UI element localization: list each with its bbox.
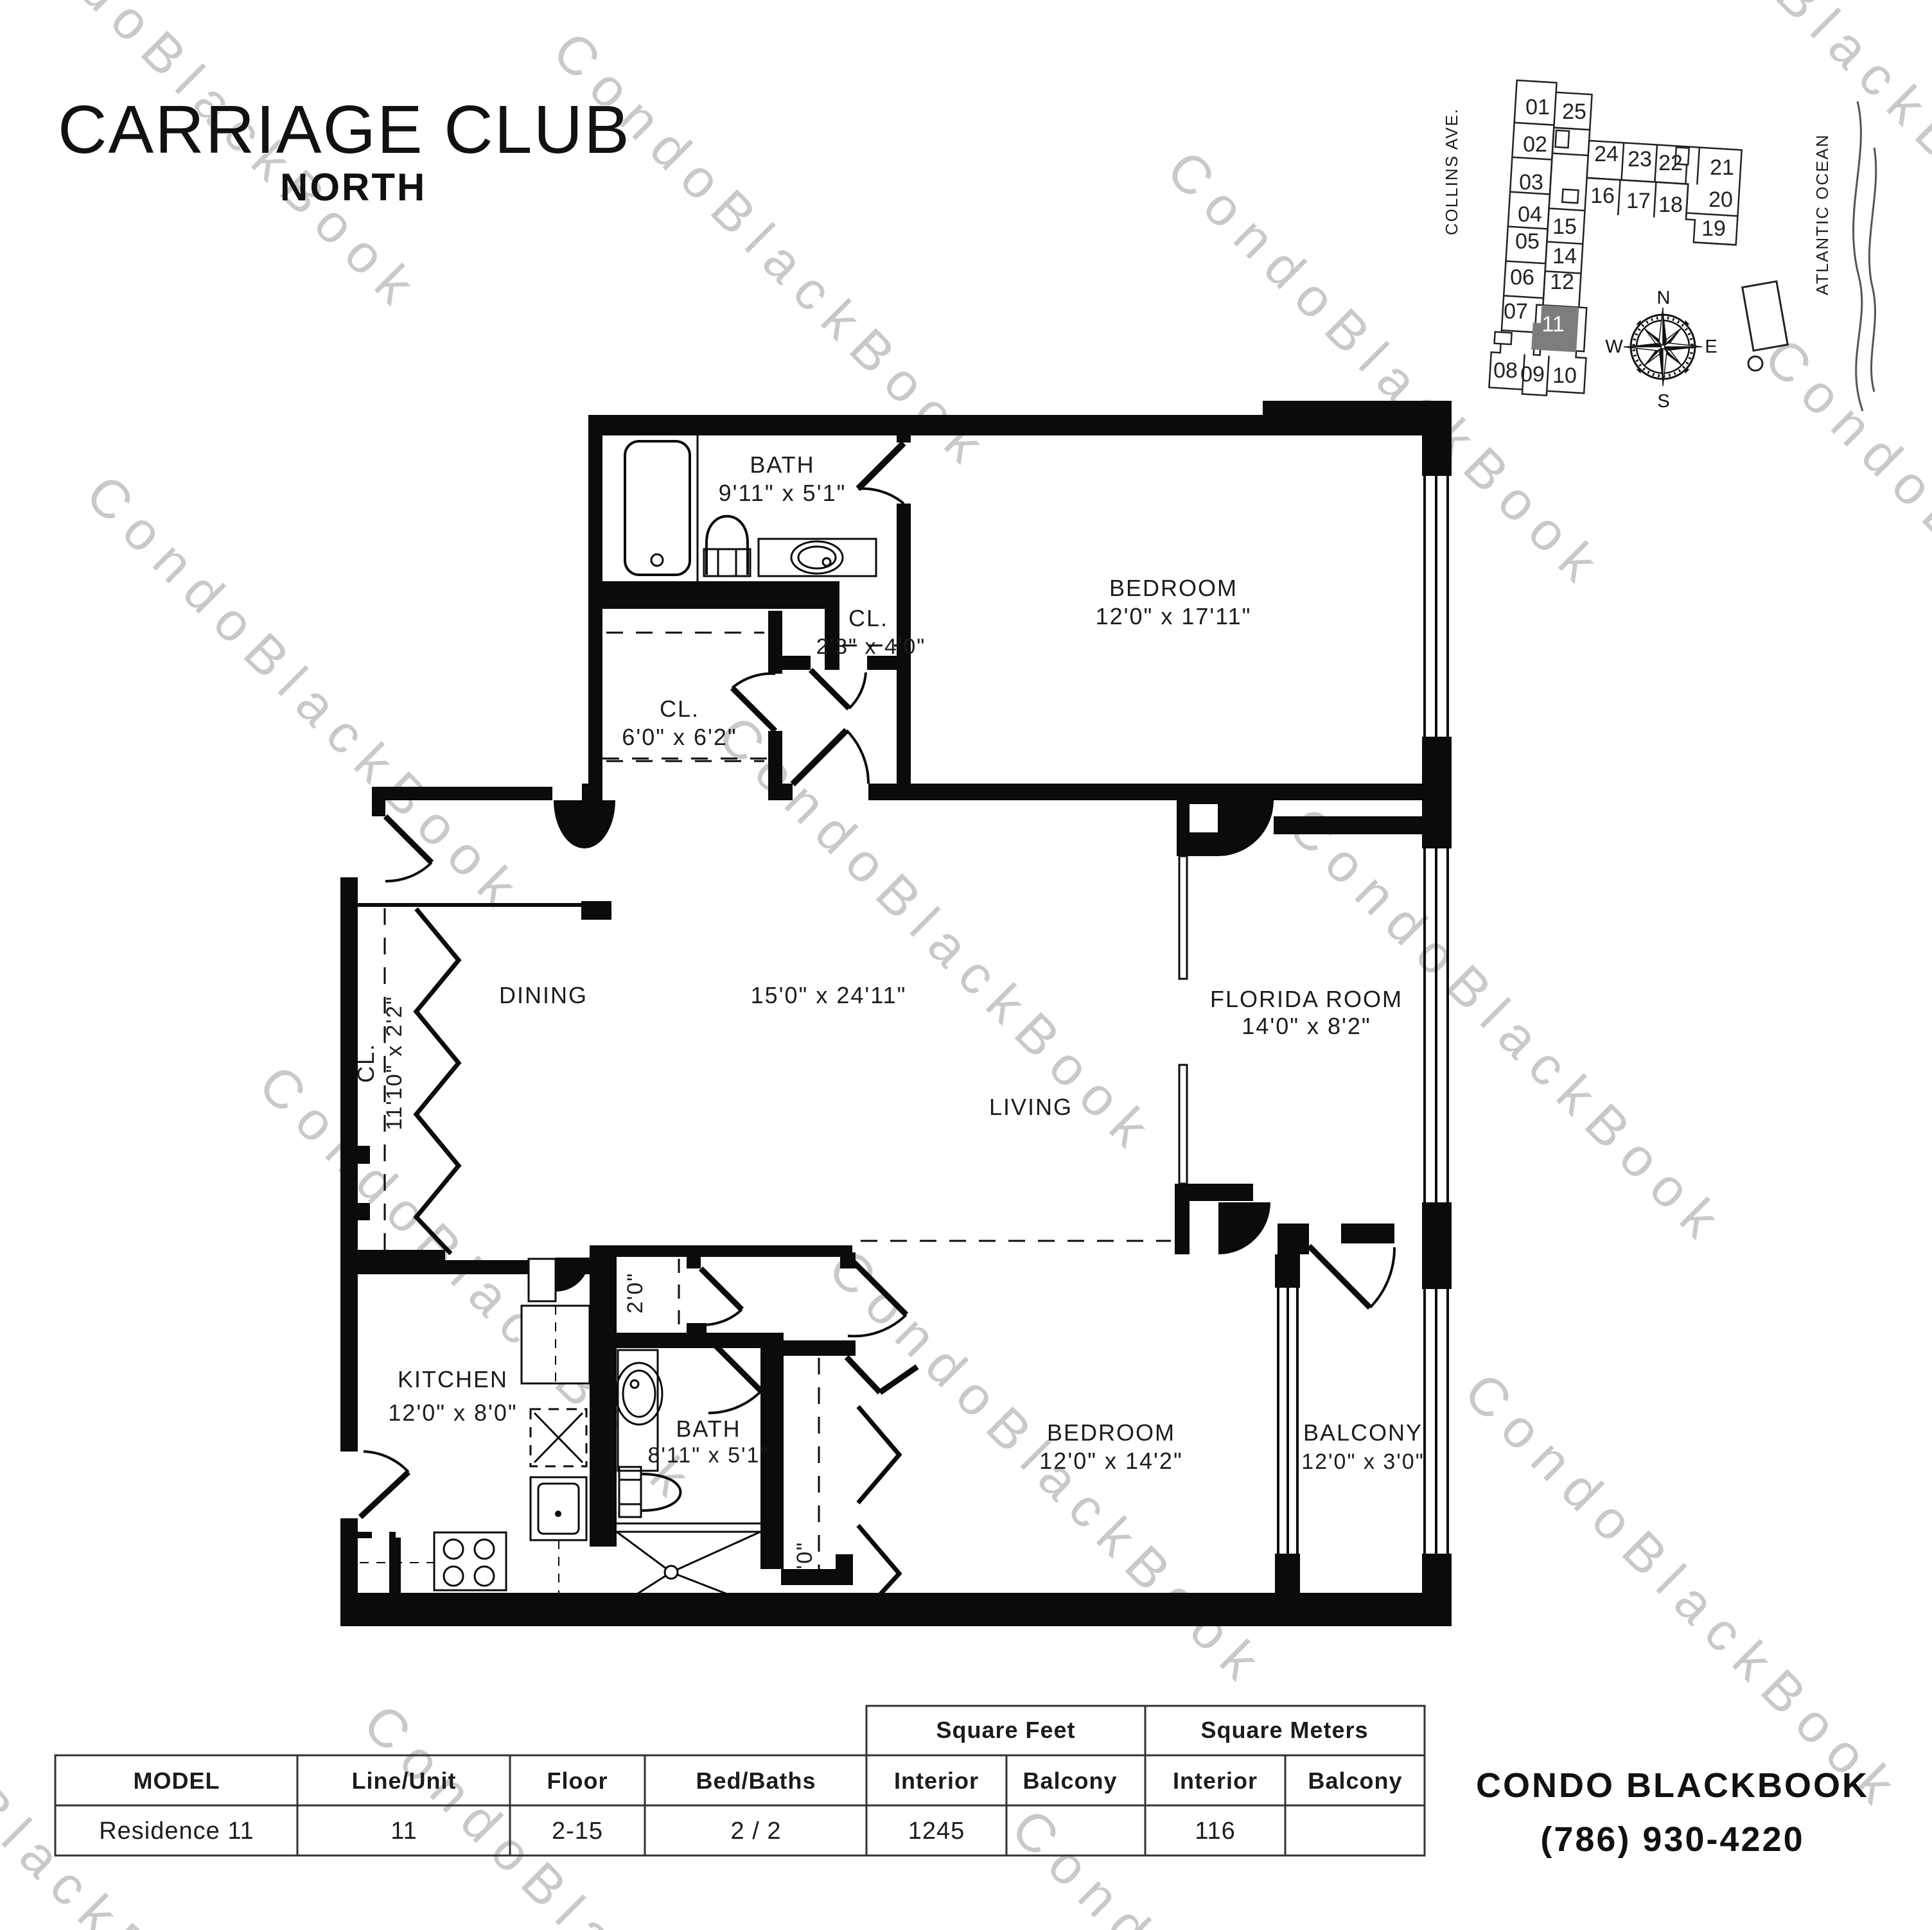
svg-text:LIVING: LIVING	[989, 1094, 1073, 1120]
svg-text:FLORIDA ROOM: FLORIDA ROOM	[1210, 986, 1403, 1012]
svg-text:116: 116	[1195, 1818, 1236, 1845]
svg-text:03: 03	[1519, 170, 1543, 195]
svg-text:11: 11	[391, 1818, 417, 1845]
svg-text:18: 18	[1658, 193, 1683, 217]
svg-text:15'0" x 24'11": 15'0" x 24'11"	[751, 982, 907, 1008]
svg-text:CL.: CL.	[848, 605, 888, 631]
svg-text:19: 19	[1701, 216, 1726, 241]
svg-text:N: N	[1657, 288, 1671, 308]
svg-text:11'10" x 2'2": 11'10" x 2'2"	[382, 996, 407, 1130]
svg-text:12'0" x 8'0": 12'0" x 8'0"	[388, 1399, 517, 1426]
svg-text:09: 09	[1520, 362, 1545, 387]
svg-text:07: 07	[1504, 299, 1528, 324]
svg-text:12: 12	[1550, 270, 1574, 294]
svg-text:Floor: Floor	[547, 1768, 608, 1794]
svg-text:14: 14	[1552, 244, 1577, 268]
svg-text:MODEL: MODEL	[134, 1768, 220, 1794]
svg-text:05: 05	[1515, 229, 1540, 254]
svg-text:ATLANTIC OCEAN: ATLANTIC OCEAN	[1813, 134, 1832, 295]
svg-text:Residence 11: Residence 11	[99, 1818, 254, 1845]
svg-text:DINING: DINING	[499, 982, 588, 1008]
svg-text:01: 01	[1525, 95, 1550, 119]
svg-text:15: 15	[1552, 215, 1577, 239]
svg-text:Interior: Interior	[894, 1768, 979, 1794]
svg-text:17: 17	[1626, 189, 1651, 213]
svg-text:02: 02	[1523, 132, 1547, 157]
svg-text:2'3" x 4'0": 2'3" x 4'0"	[816, 635, 926, 659]
svg-text:8'11" x 5'1": 8'11" x 5'1"	[647, 1443, 769, 1468]
svg-text:14'0" x 8'2": 14'0" x 8'2"	[1242, 1013, 1371, 1039]
svg-text:Bed/Baths: Bed/Baths	[696, 1768, 816, 1794]
svg-text:BATH: BATH	[750, 452, 814, 478]
svg-text:CONDO BLACKBOOK: CONDO BLACKBOOK	[1476, 1766, 1869, 1805]
svg-text:CL.: CL.	[353, 1043, 379, 1083]
svg-text:16: 16	[1590, 184, 1615, 208]
svg-text:KITCHEN: KITCHEN	[398, 1366, 508, 1392]
svg-text:24: 24	[1594, 142, 1619, 166]
svg-text:Line/Unit: Line/Unit	[352, 1768, 457, 1794]
svg-text:12'0" x 3'0": 12'0" x 3'0"	[1301, 1450, 1425, 1474]
svg-text:06: 06	[1510, 265, 1534, 290]
svg-text:11: 11	[1541, 312, 1564, 337]
svg-text:CARRIAGE CLUB: CARRIAGE CLUB	[58, 92, 631, 168]
svg-text:Balcony: Balcony	[1308, 1768, 1402, 1794]
svg-text:Balcony: Balcony	[1023, 1768, 1117, 1794]
svg-text:BATH: BATH	[676, 1416, 741, 1442]
svg-text:23: 23	[1628, 147, 1652, 171]
svg-text:25: 25	[1562, 100, 1586, 124]
svg-text:Square Feet: Square Feet	[936, 1717, 1075, 1743]
svg-text:BEDROOM: BEDROOM	[1109, 575, 1238, 601]
svg-text:6'0" x 6'2": 6'0" x 6'2"	[622, 724, 737, 750]
svg-text:1245: 1245	[908, 1818, 965, 1845]
svg-text:NORTH: NORTH	[280, 166, 426, 209]
svg-text:W: W	[1605, 337, 1623, 357]
svg-text:Interior: Interior	[1173, 1768, 1258, 1794]
svg-text:COLLINS AVE.: COLLINS AVE.	[1442, 108, 1461, 235]
svg-text:2'0": 2'0"	[623, 1272, 647, 1313]
svg-text:Square Meters: Square Meters	[1200, 1717, 1368, 1743]
svg-text:12'0" x 17'11": 12'0" x 17'11"	[1096, 603, 1252, 629]
svg-text:21: 21	[1710, 155, 1734, 180]
svg-text:E: E	[1705, 337, 1717, 357]
svg-text:2 / 2: 2 / 2	[731, 1818, 782, 1845]
svg-text:08: 08	[1493, 358, 1518, 383]
svg-text:S: S	[1657, 391, 1669, 412]
svg-text:(786) 930-4220: (786) 930-4220	[1540, 1820, 1804, 1859]
svg-text:CL.: CL.	[660, 696, 699, 722]
svg-text:04: 04	[1518, 202, 1542, 227]
svg-text:20: 20	[1708, 188, 1733, 212]
svg-text:22: 22	[1658, 151, 1683, 175]
svg-text:12'0" x 14'2": 12'0" x 14'2"	[1039, 1448, 1182, 1474]
svg-text:BALCONY: BALCONY	[1303, 1419, 1423, 1446]
svg-text:BEDROOM: BEDROOM	[1047, 1419, 1175, 1446]
svg-text:9'11" x 5'1": 9'11" x 5'1"	[719, 480, 847, 506]
svg-text:10: 10	[1552, 364, 1577, 388]
svg-text:2-15: 2-15	[552, 1818, 603, 1845]
